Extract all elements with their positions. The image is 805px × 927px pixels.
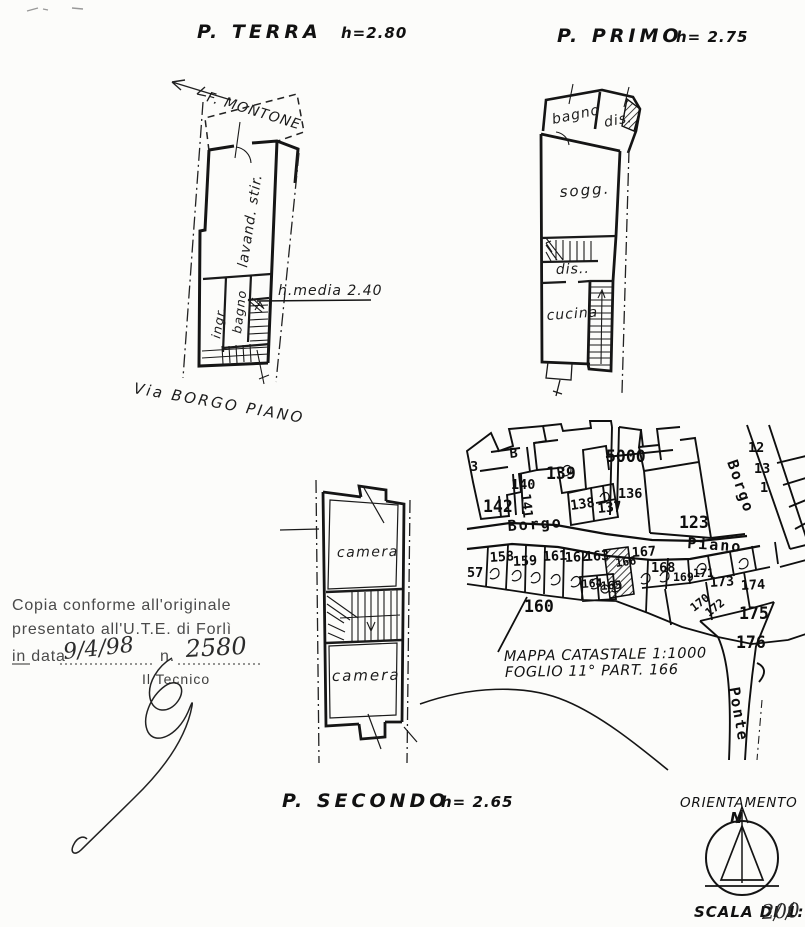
parcel-label-168: 168 xyxy=(651,560,675,576)
parcel-label-136: 136 xyxy=(618,486,642,502)
parcel-label-176: 176 xyxy=(736,633,766,652)
plan-primo: P. PRIMO h= 2.75 bagno dis. sogg. dis.. … xyxy=(541,25,748,396)
parcel-label-123: 123 xyxy=(679,513,709,532)
secondo-stairs xyxy=(327,590,400,641)
street-label-borgo-h: Borgo xyxy=(507,513,563,535)
parcel-label-167: 167 xyxy=(631,543,656,561)
plan-secondo-title: P. SECONDO xyxy=(282,790,449,812)
parcel-label-12: 12 xyxy=(748,440,764,456)
secondo-boundary-dashdot xyxy=(316,480,410,763)
parcel-label-140: 140 xyxy=(511,477,535,493)
street-label-borgo-diag: Borgo xyxy=(723,457,758,515)
room-label-camera-bottom: camera xyxy=(332,666,401,685)
room-label-cucina: cucina xyxy=(546,304,599,324)
river-label: F. MONTONE xyxy=(205,90,303,134)
parcel-label-165: 165 xyxy=(600,578,622,593)
stamp-line3-prefix: in data xyxy=(12,648,66,665)
parcel-label-142: 142 xyxy=(483,497,513,516)
map-ponte-dashdot xyxy=(757,700,762,760)
street-label-piano: Piano xyxy=(687,534,743,556)
street-label-borgo-piano: Via BORGO PIANO xyxy=(132,379,306,427)
parcel-label-163: 163 xyxy=(584,548,609,565)
plan-terra: P. TERRA h=2.80 F. MONTONE lavand. stir.… xyxy=(132,21,407,427)
room-label-soggiorno: sogg. xyxy=(559,179,611,201)
orientation-compass: ORIENTAMENTO N xyxy=(680,795,798,895)
annotation-underline xyxy=(257,300,371,301)
parcel-label-139: 139 xyxy=(546,464,576,483)
primo-entrance xyxy=(546,362,572,396)
parcel-label-b: B xyxy=(509,445,519,462)
room-label-bagno: bagno xyxy=(229,289,249,335)
plan-primo-title: P. PRIMO xyxy=(557,25,683,47)
parcel-label-174: 174 xyxy=(740,577,765,594)
parcel-label-169: 169 xyxy=(673,570,694,584)
parcel-label-13: 13 xyxy=(754,461,770,477)
parcel-label-159: 159 xyxy=(512,553,537,570)
parcel-label-3: 3 xyxy=(470,459,478,475)
primo-stair-run-treads xyxy=(589,287,612,365)
parcel-label-5000: 5000 xyxy=(606,447,646,466)
technician-signature xyxy=(72,658,192,853)
primo-stairs-band xyxy=(546,238,591,261)
room-label-ingresso: ingr. xyxy=(208,305,228,339)
scanned-cadastral-document: P. TERRA h=2.80 F. MONTONE lavand. stir.… xyxy=(0,0,805,927)
stamp-number-prefix: n. xyxy=(160,648,175,665)
map-bottom-road-curve xyxy=(420,689,668,770)
plan-terra-height: h=2.80 xyxy=(341,24,407,42)
room-label-bagno-primo: bagno xyxy=(551,102,602,128)
room-label-dis-mid: dis.. xyxy=(556,261,591,278)
primo-building-outline xyxy=(541,134,620,371)
stamp-number-handwritten: 2580 xyxy=(184,632,247,663)
scale-value-handwritten: 200 xyxy=(760,898,801,924)
scan-artifact-marks xyxy=(27,8,83,11)
plan-secondo: camera camera P. SECONDO h= 2.65 xyxy=(280,480,513,812)
parcel-label-173: 173 xyxy=(709,573,734,591)
secondo-building-outline xyxy=(323,486,404,739)
primo-boundary-dashdot xyxy=(622,150,629,393)
parcel-label-175: 175 xyxy=(739,604,769,623)
parcel-label-158: 158 xyxy=(489,548,514,566)
parcel-label-1: 1 xyxy=(760,480,768,496)
map-caption-line2: FOGLIO 11° PART. 166 xyxy=(505,662,679,681)
secondo-inner-wall-lines xyxy=(328,500,398,718)
plan-secondo-height: h= 2.65 xyxy=(441,793,513,811)
compass-needle xyxy=(736,807,748,883)
plan-primo-height: h= 2.75 xyxy=(676,28,748,46)
conformity-stamp: Copia conforme all'originale presentato … xyxy=(12,597,263,853)
parcel-label-57: 57 xyxy=(467,565,483,581)
parcel-label-138: 138 xyxy=(569,495,595,514)
scale-note: SCALA DI 1: 200 xyxy=(694,898,805,924)
stamp-line1: Copia conforme all'originale xyxy=(12,597,231,614)
room-label-camera-top: camera xyxy=(337,544,399,561)
room-label-lavanderia: lavand. stir. xyxy=(235,173,266,269)
cadastral-map: B 3 139 140 141 142 5000 138 137 136 123… xyxy=(420,421,805,770)
parcel-label-160: 160 xyxy=(524,597,554,616)
annotation-hmedia: h.media 2.40 xyxy=(278,283,383,299)
plan-terra-title: P. TERRA xyxy=(197,21,322,43)
